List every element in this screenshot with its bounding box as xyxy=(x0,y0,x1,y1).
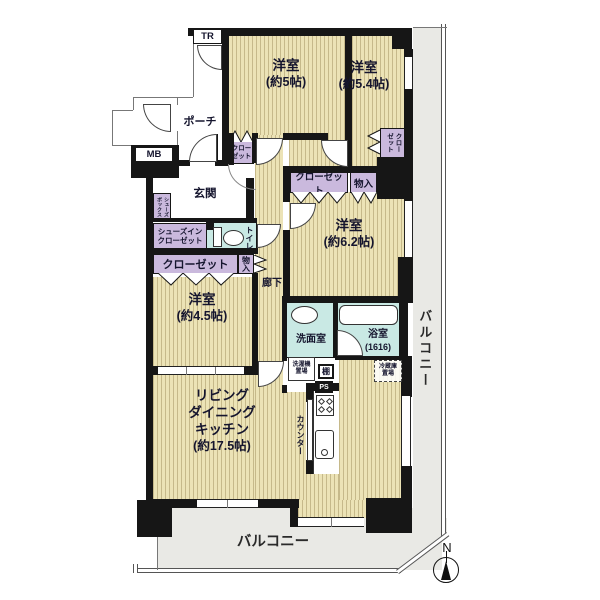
room-45-label: 洋室 (約4.5帖) xyxy=(154,292,250,325)
wall xyxy=(392,28,412,49)
closet-label: クローゼット xyxy=(232,145,252,160)
wall xyxy=(401,358,412,397)
room-size: (約4.5帖) xyxy=(154,309,250,325)
kitchen-sink xyxy=(315,430,334,459)
window xyxy=(404,201,413,257)
storage-label: 物入 xyxy=(241,256,252,272)
entrance-label: 玄関 xyxy=(188,187,222,201)
closet-label: クローゼット xyxy=(384,133,401,153)
door-arc xyxy=(189,134,217,162)
laundry-label: 洗濯機置場 xyxy=(292,362,310,376)
accordion-door-icon xyxy=(158,273,234,286)
wall xyxy=(282,303,287,361)
entrance-step-line xyxy=(228,164,256,190)
burner-icon xyxy=(326,406,333,413)
storage-room45: 物入 xyxy=(238,254,254,274)
burner-icon xyxy=(326,398,333,405)
balcony-right-area xyxy=(413,28,442,535)
room-size: (約6.2帖) xyxy=(306,235,392,251)
window-divider xyxy=(215,367,216,375)
shelf-label: 棚 xyxy=(322,366,330,377)
window-divider xyxy=(331,518,332,527)
bathtub xyxy=(339,305,398,325)
kitchen-floor xyxy=(306,474,339,500)
porch-label: ポーチ xyxy=(175,116,225,130)
wall xyxy=(282,385,287,393)
room-name: 洋室 xyxy=(326,60,402,77)
wall xyxy=(146,222,153,366)
exterior-outline xyxy=(193,43,194,97)
room-name: 洋室 xyxy=(154,292,250,309)
bathroom-label: 浴室 xyxy=(362,329,394,342)
room-name: キッチン xyxy=(172,422,272,439)
door-arc xyxy=(143,104,171,132)
burner-icon xyxy=(318,406,325,413)
toilet-tank xyxy=(213,227,222,247)
exterior-outline xyxy=(133,97,134,110)
fridge-label: 冷蔵庫置場 xyxy=(379,364,397,378)
shoes-box-label: シューズボックス xyxy=(155,197,169,217)
laundry-space: 洗濯機置場 xyxy=(288,357,315,381)
drain-icon xyxy=(321,449,328,456)
closet-label: クローゼット xyxy=(163,256,229,272)
shoes-in-closet-label: シューズインクローゼット xyxy=(158,227,203,245)
exterior-outline xyxy=(112,145,131,146)
trunk-room-label: TR xyxy=(201,31,214,42)
burner-icon xyxy=(318,398,325,405)
window xyxy=(401,396,411,438)
wall xyxy=(146,375,153,500)
shoes-box: シューズボックス xyxy=(153,193,171,221)
exterior-outline xyxy=(177,131,178,146)
wall xyxy=(366,498,412,533)
wall xyxy=(153,248,258,254)
toilet-label: トイレ xyxy=(244,224,254,252)
window xyxy=(401,438,411,466)
wash-basin xyxy=(291,306,318,324)
room-5-label: 洋室 (約5帖) xyxy=(238,58,334,91)
room-name: ダイニング xyxy=(172,405,272,422)
bathroom-size: (1616) xyxy=(358,342,398,353)
balcony-edge-line xyxy=(157,537,158,570)
wall xyxy=(282,296,413,303)
wall xyxy=(377,157,413,199)
wall xyxy=(146,178,153,222)
wall xyxy=(258,499,299,508)
exterior-outline xyxy=(112,110,113,146)
wall xyxy=(290,508,298,527)
window xyxy=(404,57,413,89)
balcony-right-label: バルコニー xyxy=(416,306,432,392)
corridor-label: 廊下 xyxy=(258,278,286,291)
room-size: (約5帖) xyxy=(238,75,334,91)
toilet-bowl xyxy=(223,230,244,246)
meter-box: MB xyxy=(135,147,173,162)
meter-box-label: MB xyxy=(147,149,162,160)
wall xyxy=(283,133,328,140)
exterior-outline xyxy=(112,110,133,111)
wall xyxy=(399,303,408,358)
closet-room45: クローゼット xyxy=(153,254,238,274)
wall xyxy=(146,499,198,508)
washroom-label: 洗面室 xyxy=(288,334,334,347)
room-size: (約5.4帖) xyxy=(326,77,402,93)
balcony-edge-line xyxy=(413,27,447,28)
wall xyxy=(283,166,290,202)
storage-mid: 物入 xyxy=(350,172,377,193)
room-size: (約17.5帖) xyxy=(172,439,272,455)
fridge-space: 冷蔵庫置場 xyxy=(374,360,402,382)
room-name: 洋室 xyxy=(306,218,392,235)
compass-needle xyxy=(441,561,451,580)
closet-mid: クローゼット xyxy=(290,172,348,193)
stove xyxy=(316,395,334,416)
window xyxy=(197,499,258,508)
trunk-room-box: TR xyxy=(193,29,222,44)
room-name: リビング xyxy=(172,388,272,405)
room-54-label: 洋室 (約5.4帖) xyxy=(326,60,402,93)
north-label: N xyxy=(437,540,457,556)
balcony-outer-rail-step xyxy=(133,564,138,573)
window xyxy=(298,517,364,527)
shoes-in-closet: シューズインクローゼット xyxy=(153,223,207,249)
wall xyxy=(146,366,158,375)
window-divider xyxy=(186,367,187,375)
accordion-door-icon xyxy=(253,255,267,273)
sliding-partition xyxy=(158,366,244,375)
shelf-box: 棚 xyxy=(318,364,334,379)
balcony-outer-rail xyxy=(136,568,401,573)
balcony-outer-rail xyxy=(441,24,446,536)
pipe-space-box: PS xyxy=(315,381,333,393)
wall xyxy=(401,466,412,500)
room-62-label: 洋室 (約6.2帖) xyxy=(306,218,392,251)
floor-plan: クローゼット クローゼット クローゼット 物入 シューズインクローゼット クロー… xyxy=(0,0,600,600)
exterior-outline xyxy=(177,97,178,105)
pipe-space-label: PS xyxy=(319,384,328,391)
balcony-bottom-label: バルコニー xyxy=(225,533,321,551)
ldk-label: リビング ダイニング キッチン (約17.5帖) xyxy=(172,388,272,454)
accordion-door-icon xyxy=(351,192,377,204)
wall xyxy=(306,460,313,474)
closet-room54: クローゼット xyxy=(380,128,405,158)
exterior-outline xyxy=(133,97,193,98)
window-divider xyxy=(227,500,228,508)
counter-label: カウンター xyxy=(295,411,305,459)
kitchen-floor xyxy=(298,500,366,518)
door-arc xyxy=(197,45,222,70)
accordion-door-icon xyxy=(366,129,381,155)
room-name: 洋室 xyxy=(238,58,334,75)
wall xyxy=(153,218,257,222)
storage-label: 物入 xyxy=(354,176,373,190)
